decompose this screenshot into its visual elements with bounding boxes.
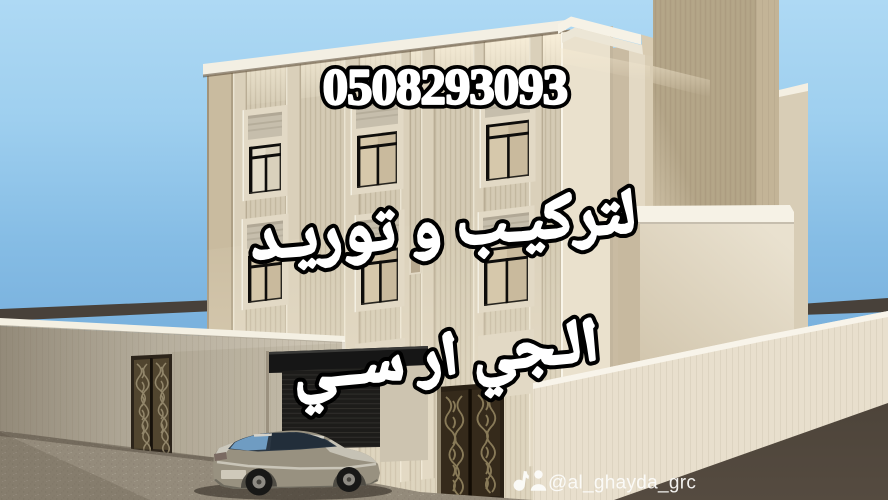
svg-text:@al_ghayda_grc: @al_ghayda_grc [548, 473, 696, 494]
svg-text:0508293093: 0508293093 [323, 59, 568, 115]
